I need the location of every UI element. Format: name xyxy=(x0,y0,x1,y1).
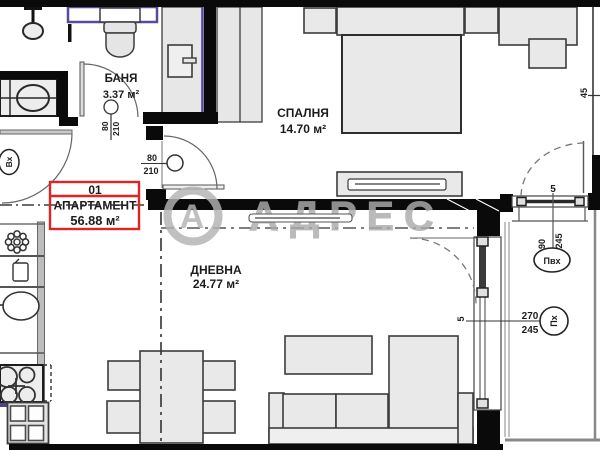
svg-text:ДНЕВНА: ДНЕВНА xyxy=(190,263,242,277)
svg-text:24.77 м²: 24.77 м² xyxy=(193,277,239,291)
svg-text:А: А xyxy=(180,198,205,236)
svg-text:210: 210 xyxy=(143,166,158,176)
svg-text:270: 270 xyxy=(522,311,539,322)
svg-text:210: 210 xyxy=(111,122,121,136)
svg-text:3.37 м²: 3.37 м² xyxy=(103,89,140,101)
svg-text:5: 5 xyxy=(456,316,466,321)
svg-text:СПАЛНЯ: СПАЛНЯ xyxy=(277,106,329,120)
svg-text:5: 5 xyxy=(550,184,556,195)
svg-text:Пвх: Пвх xyxy=(543,256,560,266)
svg-text:245: 245 xyxy=(554,233,564,248)
svg-text:56.88 м²: 56.88 м² xyxy=(70,213,119,228)
svg-text:80: 80 xyxy=(100,121,110,131)
svg-text:80: 80 xyxy=(147,153,157,163)
svg-text:Вх: Вх xyxy=(4,156,14,167)
svg-text:45: 45 xyxy=(579,88,589,98)
svg-text:90: 90 xyxy=(537,239,547,249)
svg-text:БАНЯ: БАНЯ xyxy=(105,73,138,85)
svg-text:14.70 м²: 14.70 м² xyxy=(280,122,326,136)
svg-text:Пх: Пх xyxy=(549,315,559,326)
svg-text:245: 245 xyxy=(522,325,539,336)
